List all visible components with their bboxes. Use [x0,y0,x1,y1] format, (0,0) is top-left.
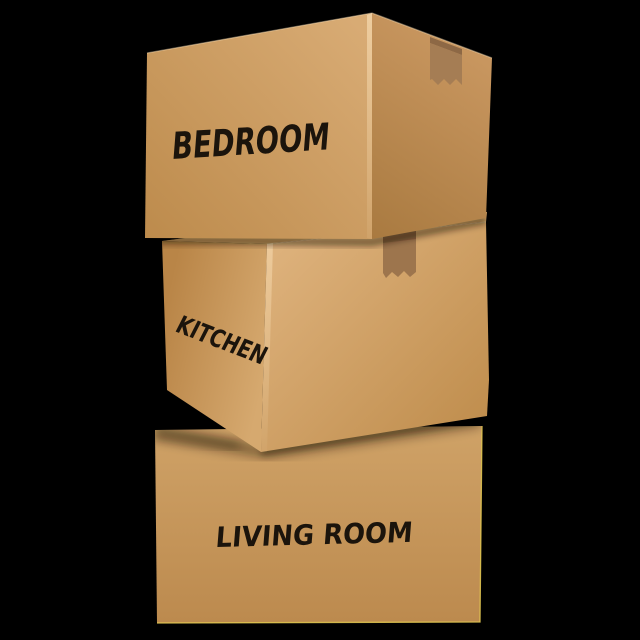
moving-boxes-canvas: LIVING ROOM KITCHEN BEDROOM [0,0,640,640]
bedroom-box: BEDROOM [145,13,492,239]
bedroom-box-front-edge-highlight [367,13,372,239]
moving-boxes-illustration: LIVING ROOM KITCHEN BEDROOM [0,0,640,640]
living-room-box-label: LIVING ROOM [214,516,414,554]
kitchen-box-right-face [261,222,489,452]
living-room-box: LIVING ROOM [154,417,487,623]
kitchen-tape-strip [383,239,416,278]
